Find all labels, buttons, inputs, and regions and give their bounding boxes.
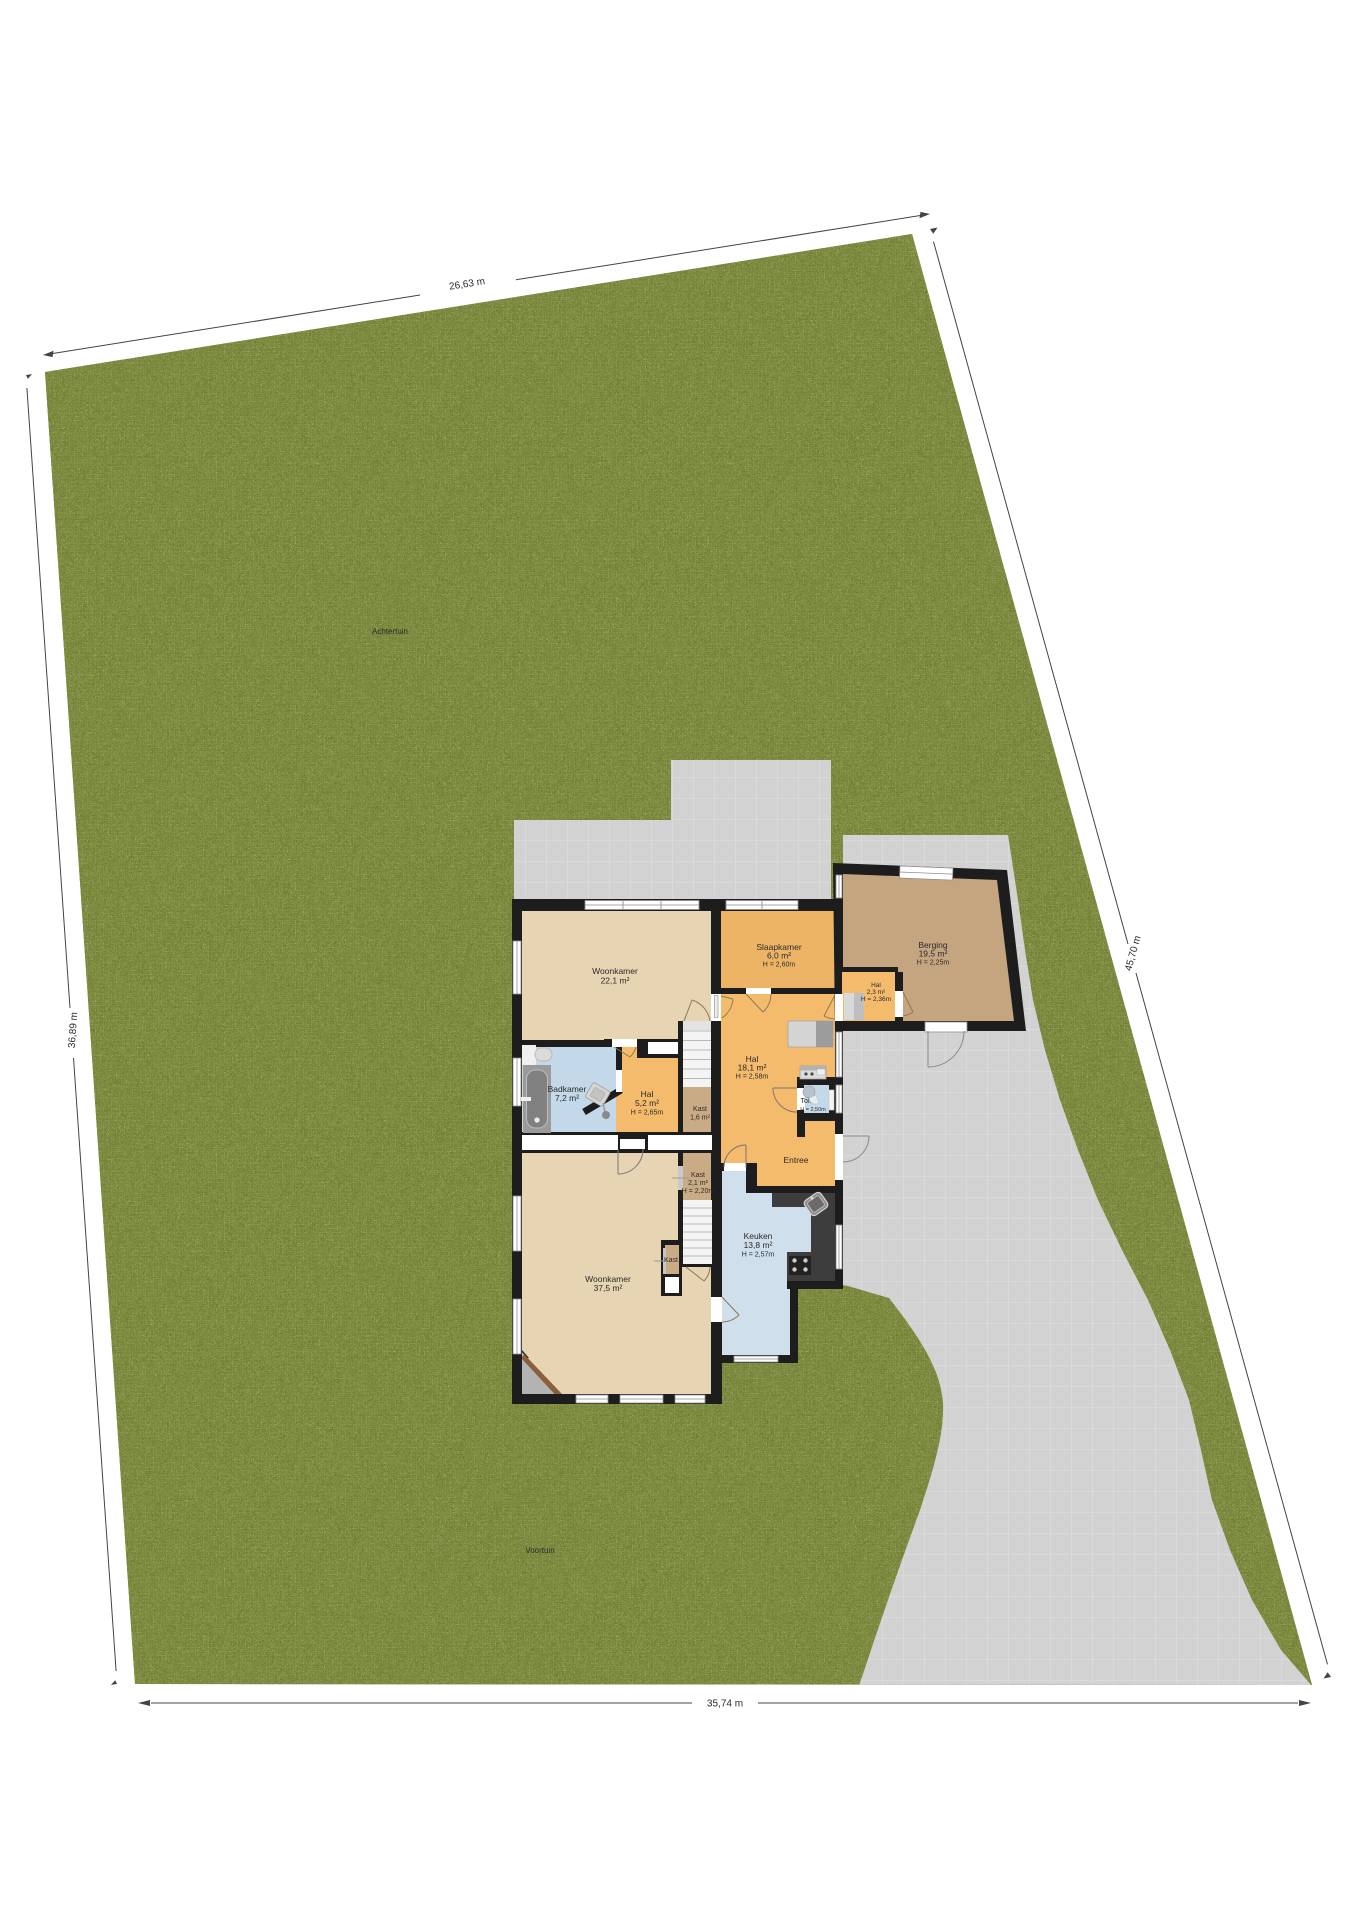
svg-text:Entree: Entree xyxy=(783,1155,808,1165)
svg-text:Woonkamer: Woonkamer xyxy=(592,966,638,976)
svg-text:37,5 m²: 37,5 m² xyxy=(594,1283,623,1293)
svg-text:7,2 m²: 7,2 m² xyxy=(555,1093,579,1103)
svg-text:H = 2,25m: H = 2,25m xyxy=(917,960,950,967)
svg-text:H = 2,57m: H = 2,57m xyxy=(742,1252,775,1259)
svg-text:Kast: Kast xyxy=(664,1257,678,1264)
svg-text:35,74 m: 35,74 m xyxy=(707,1699,743,1710)
svg-text:22,1 m²: 22,1 m² xyxy=(601,976,630,986)
svg-text:18,1 m²: 18,1 m² xyxy=(738,1063,767,1073)
svg-text:H = 2,36m: H = 2,36m xyxy=(861,996,891,1003)
svg-text:2,3 m²: 2,3 m² xyxy=(867,989,886,996)
svg-text:1,6 m²: 1,6 m² xyxy=(690,1115,711,1122)
svg-text:H = 2,65m: H = 2,65m xyxy=(631,1110,664,1117)
svg-text:H = 2,60m: H = 2,60m xyxy=(763,962,796,969)
svg-text:Toi.: Toi. xyxy=(801,1098,812,1105)
svg-text:Kast: Kast xyxy=(691,1172,705,1179)
svg-text:Voortuin: Voortuin xyxy=(525,1546,554,1555)
svg-text:6,0 m²: 6,0 m² xyxy=(767,951,791,961)
svg-text:Hal: Hal xyxy=(871,982,881,989)
svg-text:13,8 m²: 13,8 m² xyxy=(744,1240,773,1250)
svg-text:2,1 m²: 2,1 m² xyxy=(688,1180,709,1187)
svg-text:Achtertuin: Achtertuin xyxy=(372,627,408,636)
svg-text:H = 2,20m: H = 2,20m xyxy=(682,1188,715,1195)
svg-text:H = 2,58m: H = 2,58m xyxy=(736,1074,769,1081)
svg-text:H = 2,50m: H = 2,50m xyxy=(800,1107,826,1113)
svg-text:19,5 m²: 19,5 m² xyxy=(919,949,948,959)
svg-text:5,2 m²: 5,2 m² xyxy=(635,1098,659,1108)
svg-text:Kast: Kast xyxy=(693,1106,707,1113)
